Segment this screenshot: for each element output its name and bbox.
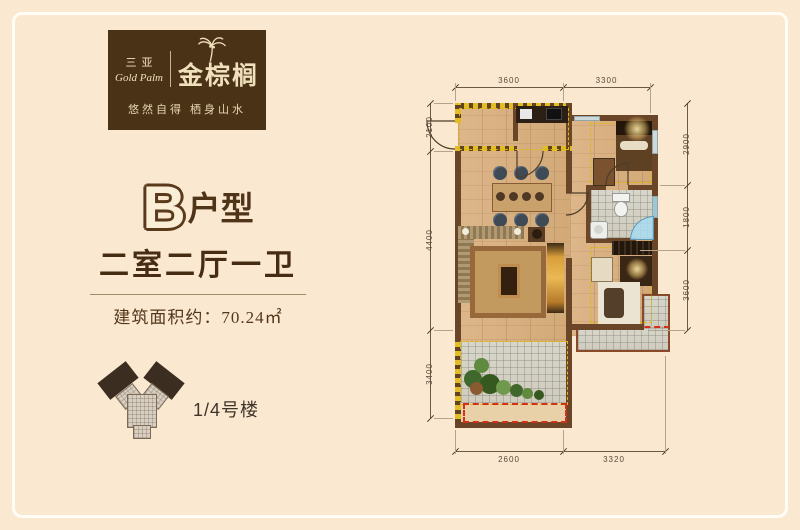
dim-extension (434, 103, 453, 104)
dim-line (455, 451, 665, 452)
dim-line (455, 87, 650, 88)
dim-label-left-1: 2100 (425, 107, 435, 147)
dim-extension (434, 330, 453, 331)
dim-label-top-2: 3300 (563, 76, 650, 85)
dim-extension (650, 83, 651, 113)
dim-label-right-2: 1800 (682, 197, 692, 237)
dim-label-right-1: 2900 (682, 124, 692, 164)
dim-extension (563, 430, 564, 454)
dim-extension (640, 250, 685, 251)
kitchen-door-arc (517, 151, 543, 177)
dim-label-top-1: 3600 (455, 76, 563, 85)
dim-extension (434, 418, 453, 419)
dim-extension (434, 151, 453, 152)
dim-label-left-3: 3400 (425, 354, 435, 394)
dim-label-left-2: 4400 (425, 220, 435, 260)
dim-label-right-3: 3600 (682, 270, 692, 310)
brochure-canvas: 三亚 Gold Palm 金棕榈 悠然自 (0, 0, 800, 530)
floor-plan: 3600 3300 2600 3320 2100 4400 3400 2900 … (0, 0, 800, 530)
dim-extension (665, 356, 666, 454)
hall-door-arc (566, 193, 588, 215)
dim-extension (455, 83, 456, 101)
dim-extension (563, 83, 564, 101)
dim-label-bottom-1: 2600 (455, 455, 563, 464)
dim-extension (648, 330, 685, 331)
dim-label-bottom-2: 3320 (563, 455, 665, 464)
dim-extension (455, 430, 456, 454)
bedroom-door-arc (606, 163, 628, 185)
dim-extension (660, 185, 685, 186)
